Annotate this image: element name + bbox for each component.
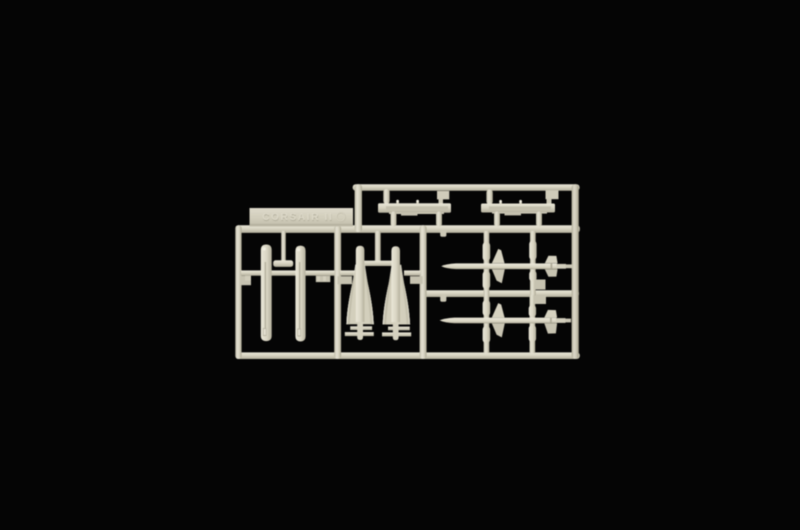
svg-text:CORSAIR II: CORSAIR II [262, 212, 333, 223]
